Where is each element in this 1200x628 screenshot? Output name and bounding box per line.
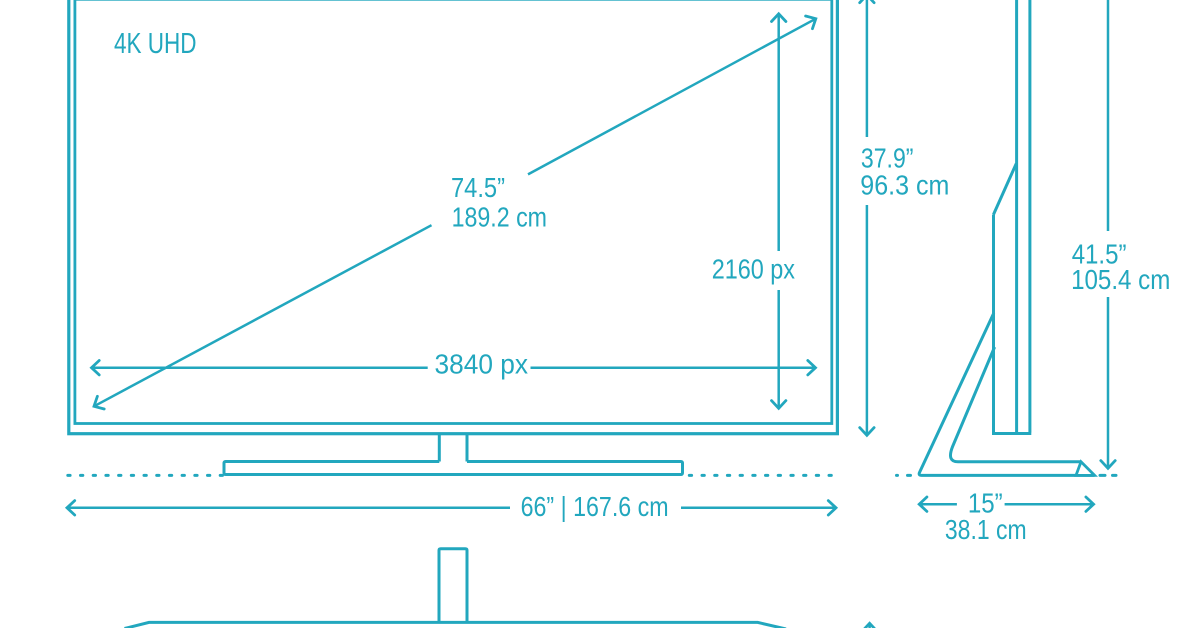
svg-text:74.5”: 74.5” (451, 172, 505, 203)
svg-text:3840 px: 3840 px (435, 349, 529, 380)
svg-text:189.2 cm: 189.2 cm (452, 201, 547, 232)
svg-text:38.1 cm: 38.1 cm (945, 514, 1027, 545)
svg-text:2160 px: 2160 px (712, 253, 796, 284)
svg-text:4K UHD: 4K UHD (114, 28, 197, 60)
svg-text:96.3 cm: 96.3 cm (860, 169, 949, 200)
svg-text:66” | 167.6 cm: 66” | 167.6 cm (521, 491, 669, 522)
svg-text:105.4 cm: 105.4 cm (1071, 264, 1170, 295)
